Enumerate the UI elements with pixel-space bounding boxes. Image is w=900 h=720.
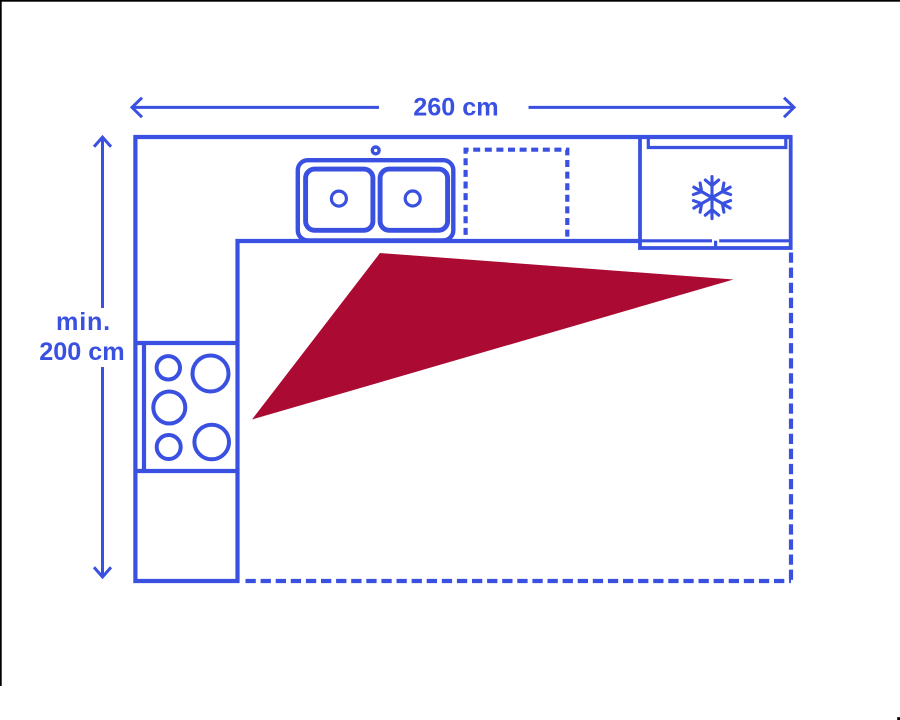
svg-text:260 cm: 260 cm [413, 94, 498, 122]
svg-text:200 cm: 200 cm [39, 338, 124, 366]
svg-text:min.: min. [56, 308, 111, 336]
